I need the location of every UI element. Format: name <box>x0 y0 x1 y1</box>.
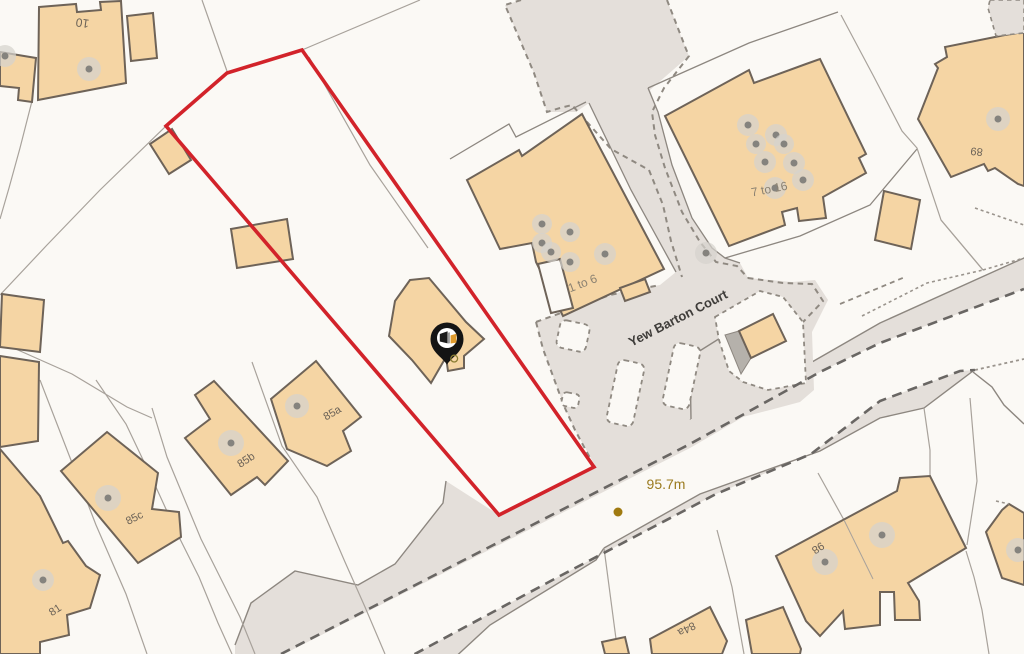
svg-text:95.7m: 95.7m <box>647 476 686 492</box>
svg-text:89: 89 <box>970 144 983 157</box>
svg-text:10: 10 <box>75 15 90 31</box>
